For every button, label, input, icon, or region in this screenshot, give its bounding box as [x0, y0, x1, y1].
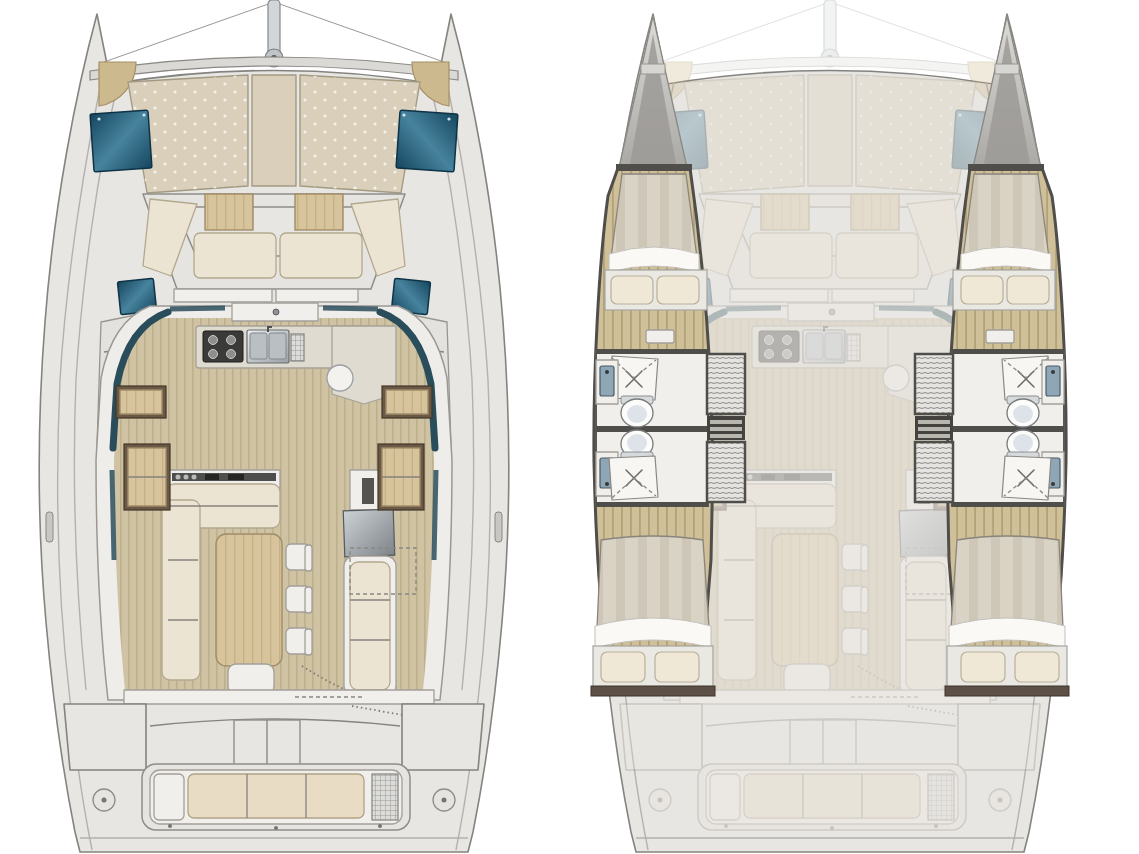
accommodation-plan-view	[591, 0, 1069, 852]
deck-plan-view	[39, 0, 509, 852]
floor-plan-canvas	[0, 0, 1139, 854]
